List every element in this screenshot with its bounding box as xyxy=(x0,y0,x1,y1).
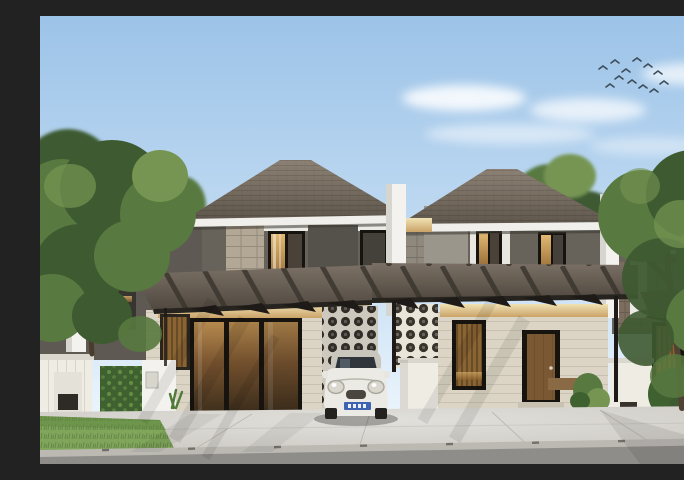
plate-character xyxy=(348,404,351,408)
canopy-slab-right xyxy=(372,263,638,303)
side-mirror xyxy=(384,371,390,378)
front-door xyxy=(522,330,560,404)
headlight-glint xyxy=(332,383,337,387)
cloud xyxy=(530,98,646,122)
headlight xyxy=(368,381,384,394)
door-step xyxy=(518,402,564,408)
plate-character xyxy=(363,404,366,408)
plate-character xyxy=(358,404,361,408)
wheel xyxy=(325,408,337,419)
door-handle xyxy=(549,366,553,370)
foliage-blob xyxy=(118,316,162,352)
foliage-highlight xyxy=(620,168,660,204)
scene-canvas xyxy=(40,16,684,464)
headlight xyxy=(328,381,344,394)
side-mirror xyxy=(322,371,328,378)
plate-character xyxy=(353,404,356,408)
gate-plate xyxy=(146,372,158,388)
cloud xyxy=(425,124,595,144)
canopy-post xyxy=(392,300,396,372)
cloud xyxy=(402,85,526,111)
canopy-post xyxy=(164,308,167,366)
wheel xyxy=(375,408,387,419)
glass-entry-doors xyxy=(190,318,302,416)
foliage-blob xyxy=(94,220,170,292)
soffit-glow xyxy=(440,304,608,317)
foliage-highlight xyxy=(44,164,96,208)
car-grille xyxy=(346,390,366,399)
canopy-post xyxy=(614,296,618,402)
headlight-glint xyxy=(372,383,377,387)
fence-cap xyxy=(40,354,94,360)
window-glow xyxy=(456,372,482,380)
foliage-blob xyxy=(132,150,188,202)
architectural-render: Daytime rendering of a row of modern min… xyxy=(40,16,684,464)
mailbox-slot xyxy=(58,394,78,410)
